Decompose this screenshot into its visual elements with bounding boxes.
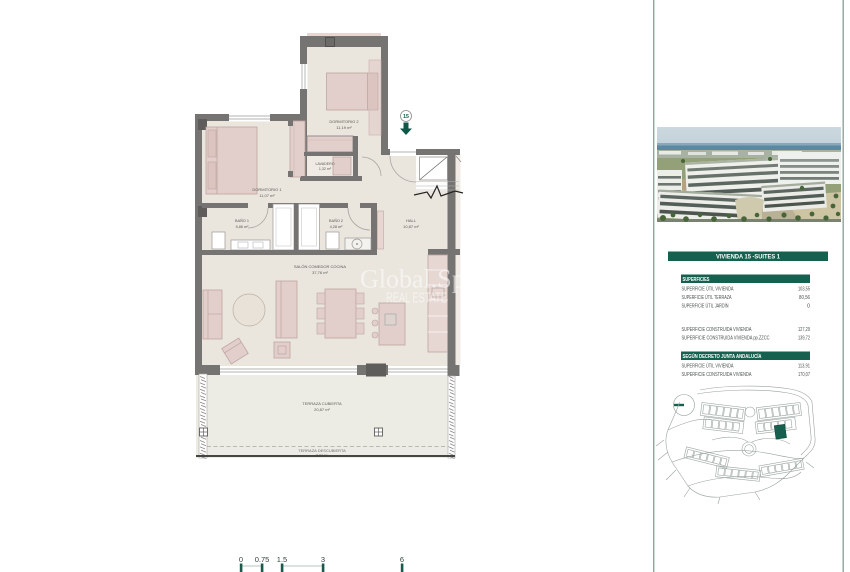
- svg-text:0: 0: [239, 555, 243, 564]
- svg-text:11,19 m²: 11,19 m²: [336, 125, 352, 130]
- svg-text:10,87 m²: 10,87 m²: [403, 224, 419, 229]
- svg-text:1.5: 1.5: [277, 555, 287, 564]
- svg-text:170,07: 170,07: [798, 372, 810, 378]
- svg-text:TERRAZA DESCUBIERTA: TERRAZA DESCUBIERTA: [298, 448, 346, 453]
- svg-text:LAVADERO: LAVADERO: [315, 162, 334, 166]
- svg-text:SEGÚN DECRETO JUNTA ANDALUCÍA: SEGÚN DECRETO JUNTA ANDALUCÍA: [683, 352, 762, 360]
- svg-text:REAL ESTATE: REAL ESTATE: [386, 291, 447, 307]
- svg-text:37,76 m²: 37,76 m²: [312, 270, 328, 275]
- svg-text:20,87 m²: 20,87 m²: [314, 407, 330, 412]
- svg-text:3: 3: [321, 555, 325, 564]
- svg-text:BAÑO 2: BAÑO 2: [329, 218, 343, 223]
- svg-text:127,29: 127,29: [798, 327, 810, 333]
- svg-text:DORMITORIO 1: DORMITORIO 1: [252, 187, 282, 192]
- svg-text:SUPERFICIE ÚTIL TERRAZA: SUPERFICIE ÚTIL TERRAZA: [682, 294, 732, 301]
- svg-text:5,86 m²: 5,86 m²: [236, 225, 250, 229]
- svg-text:SUPERFICIE CONSTRUIDA VIVIENDA: SUPERFICIE CONSTRUIDA VIVIENDA: [682, 327, 752, 333]
- svg-text:113,91: 113,91: [798, 363, 810, 369]
- svg-text:Global.Spain: Global.Spain: [360, 265, 497, 294]
- svg-text:139,72: 139,72: [798, 336, 810, 342]
- svg-text:0: 0: [807, 303, 810, 309]
- svg-text:SALÓN COMEDOR COCINA: SALÓN COMEDOR COCINA: [294, 264, 347, 269]
- svg-text:103,55: 103,55: [798, 286, 810, 292]
- svg-text:15: 15: [403, 114, 409, 120]
- svg-text:SUPERFICIES: SUPERFICIES: [683, 277, 711, 283]
- svg-text:VIVIENDA 15 -SUITES 1: VIVIENDA 15 -SUITES 1: [716, 254, 780, 261]
- svg-text:11,07 m²: 11,07 m²: [259, 193, 275, 198]
- svg-text:BAÑO 1: BAÑO 1: [235, 218, 249, 223]
- svg-text:4,28 m²: 4,28 m²: [330, 225, 344, 229]
- svg-text:SUPERFICIE ÚTIL VIVIENDA: SUPERFICIE ÚTIL VIVIENDA: [682, 285, 734, 292]
- svg-text:SUPERFICIE ÚTIL JARDÍN: SUPERFICIE ÚTIL JARDÍN: [682, 302, 729, 309]
- svg-text:SUPERFICIE CONSTRUIDA VIVIENDA: SUPERFICIE CONSTRUIDA VIVIENDA pp.ZZCC: [682, 336, 770, 342]
- svg-text:SUPERFICIE ÚTIL VIVIENDA: SUPERFICIE ÚTIL VIVIENDA: [682, 362, 734, 369]
- svg-text:DORMITORIO 2: DORMITORIO 2: [329, 119, 359, 124]
- svg-text:SUPERFICIE CONSTRUIDA VIVIENDA: SUPERFICIE CONSTRUIDA VIVIENDA: [682, 372, 752, 378]
- svg-text:1,32 m²: 1,32 m²: [319, 167, 332, 171]
- svg-text:TERRAZA CUBIERTA: TERRAZA CUBIERTA: [302, 401, 342, 406]
- svg-text:80,56: 80,56: [799, 295, 810, 301]
- svg-text:0.75: 0.75: [255, 555, 270, 564]
- svg-text:HALL: HALL: [406, 218, 417, 223]
- svg-text:6: 6: [400, 555, 404, 564]
